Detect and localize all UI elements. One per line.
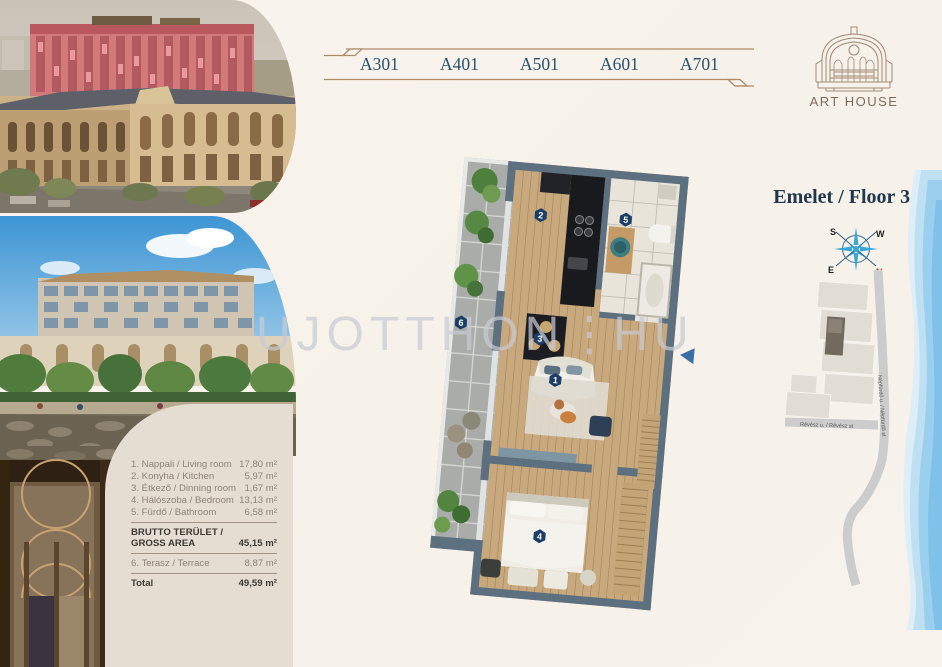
svg-text:S: S (830, 227, 836, 237)
svg-text:1: 1 (552, 375, 558, 385)
svg-text:5: 5 (623, 215, 629, 225)
svg-text:Révész u. / Révész st: Révész u. / Révész st (800, 422, 854, 430)
svg-text:2: 2 (538, 210, 544, 220)
svg-text:ART HOUSE: ART HOUSE (810, 94, 899, 109)
svg-text:4: 4 (537, 531, 543, 541)
svg-text:W: W (876, 229, 885, 239)
